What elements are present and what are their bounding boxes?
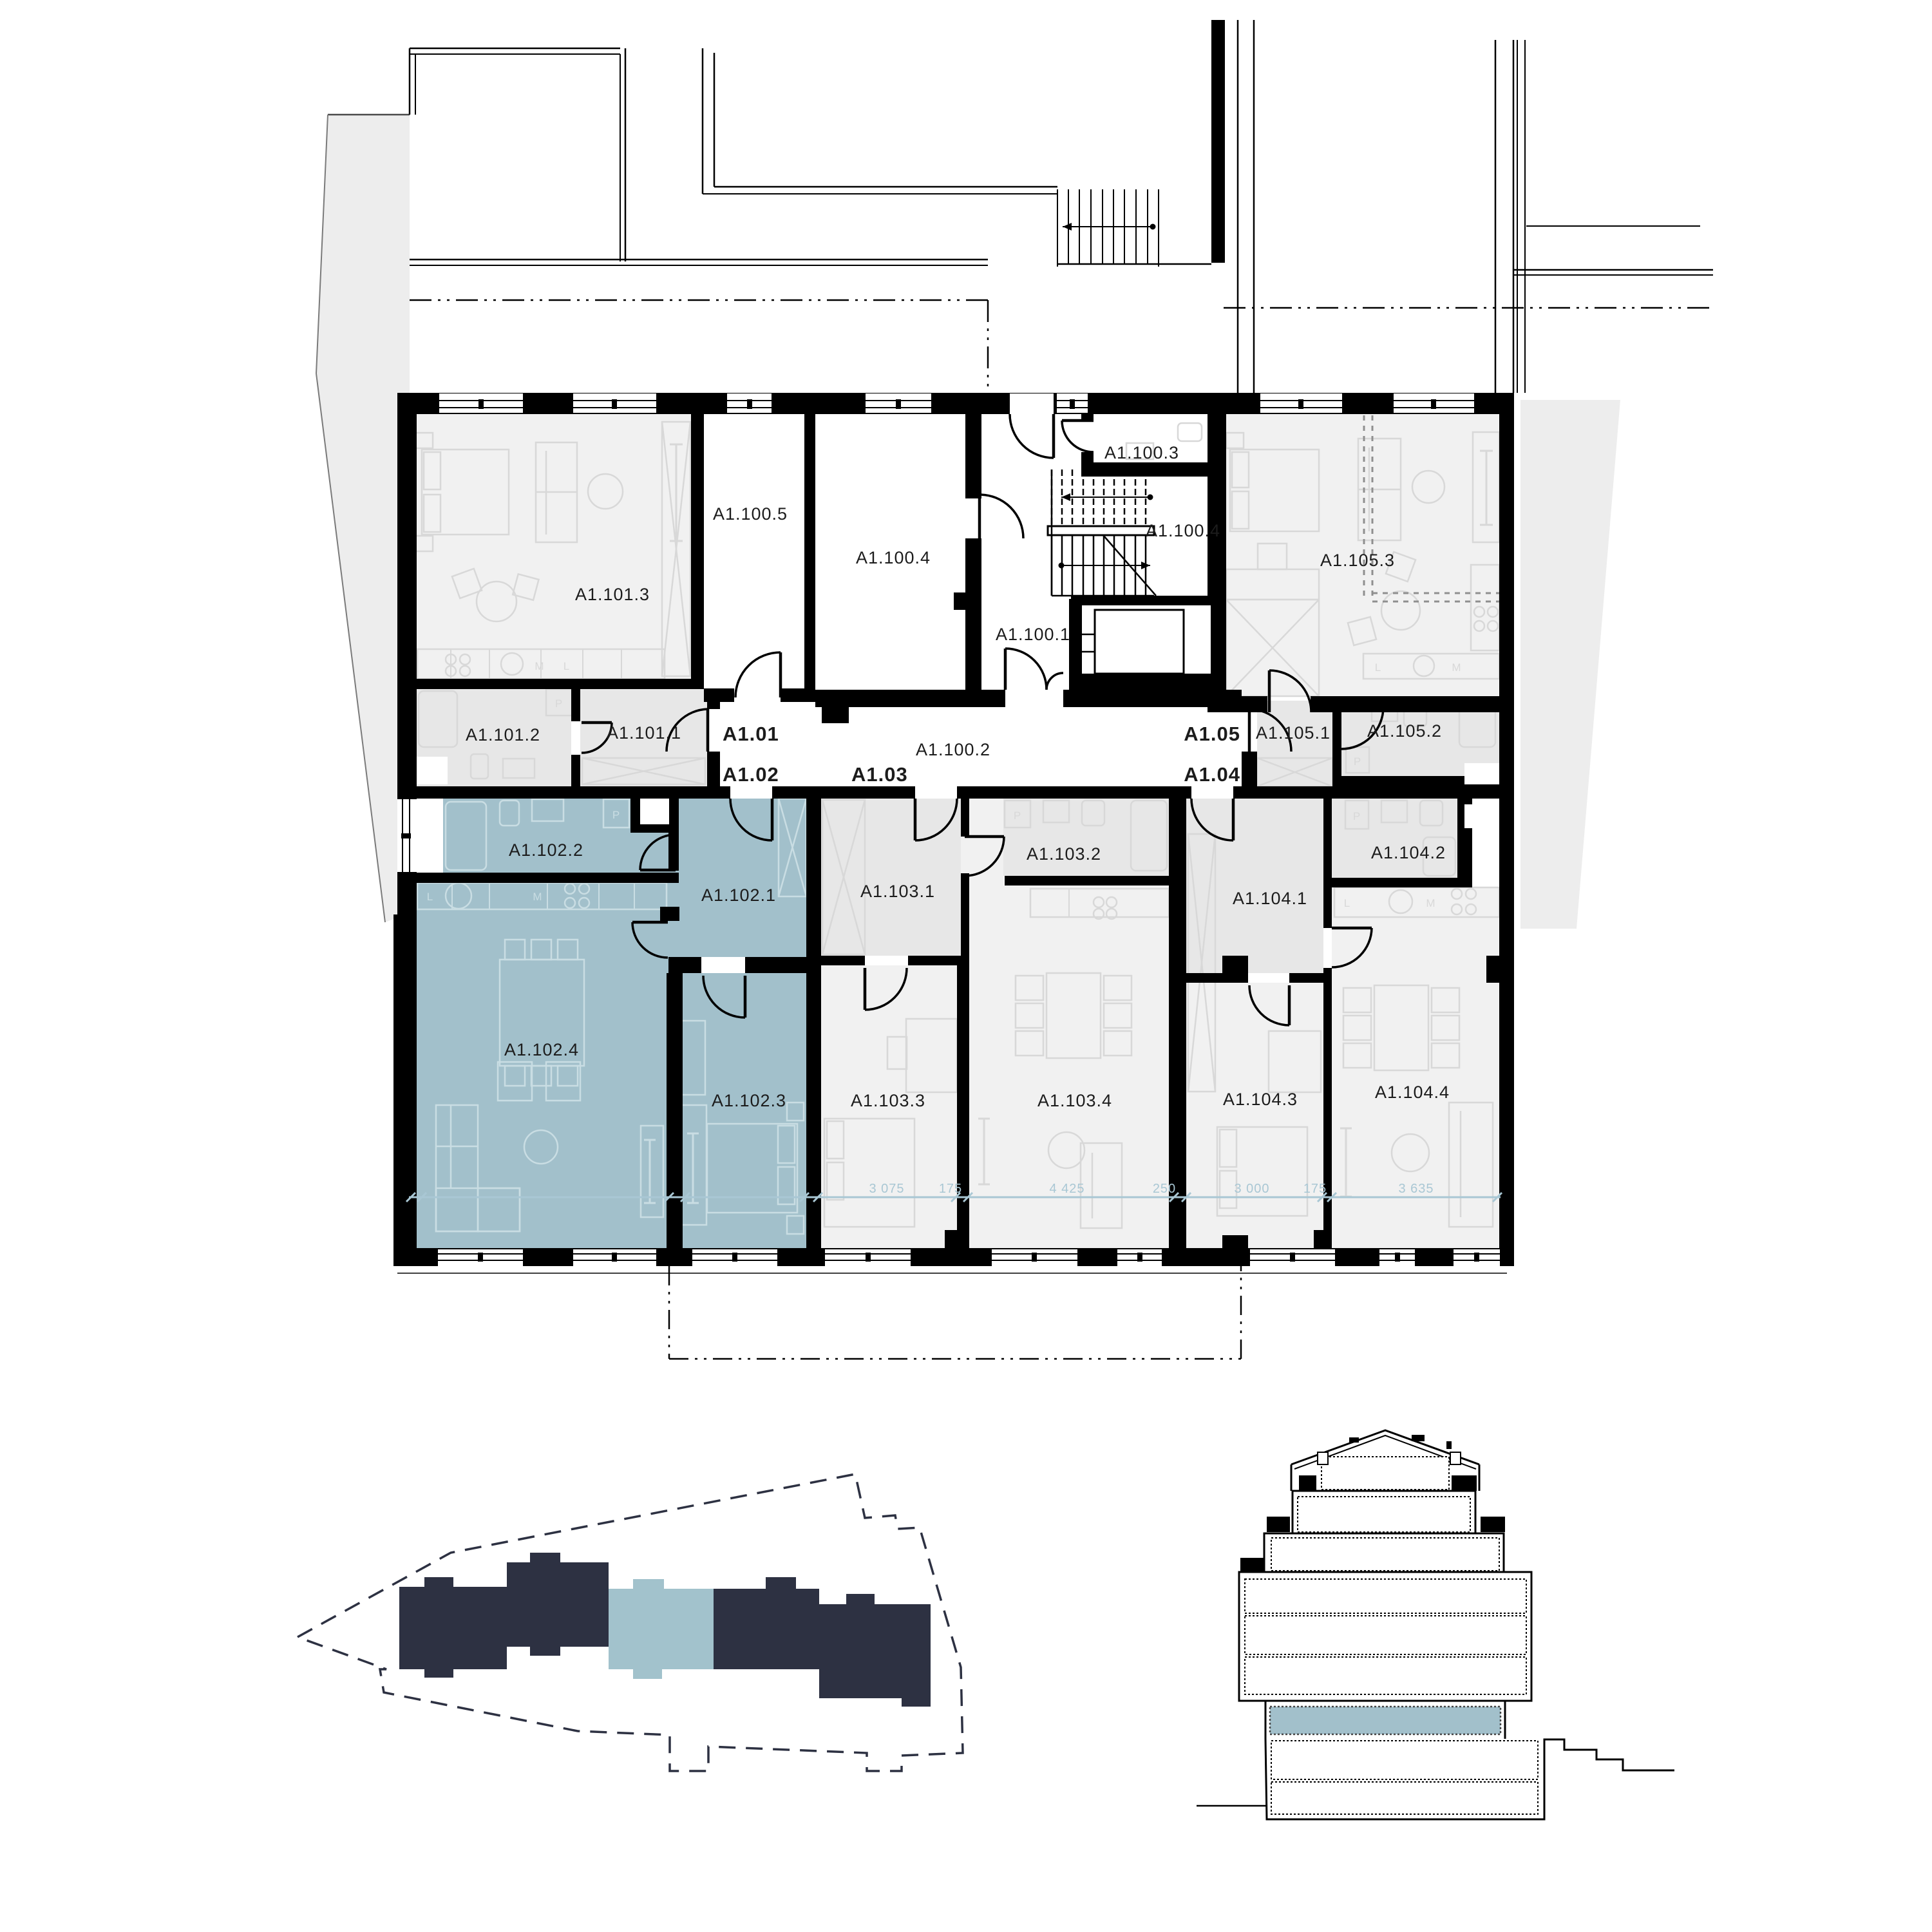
svg-text:A1.05: A1.05 (1184, 723, 1240, 745)
svg-text:P: P (1354, 755, 1361, 768)
svg-text:M: M (1426, 897, 1435, 909)
svg-text:A1.105.2: A1.105.2 (1367, 721, 1442, 741)
svg-text:A1.100.1: A1.100.1 (996, 625, 1070, 644)
svg-text:A1.104.1: A1.104.1 (1233, 889, 1307, 908)
svg-text:A1.103.2: A1.103.2 (1027, 844, 1101, 864)
svg-text:A1.102.2: A1.102.2 (509, 840, 583, 860)
svg-text:A1.03: A1.03 (851, 763, 908, 786)
svg-text:A1.102.4: A1.102.4 (504, 1040, 579, 1059)
svg-text:3 635: 3 635 (1398, 1182, 1434, 1196)
svg-text:A1.100.4: A1.100.4 (856, 548, 931, 567)
svg-text:P: P (612, 809, 620, 821)
svg-text:A1.105.1: A1.105.1 (1256, 723, 1331, 743)
svg-text:M: M (1452, 661, 1461, 674)
svg-text:175: 175 (1303, 1182, 1327, 1196)
svg-text:A1.02: A1.02 (723, 763, 779, 786)
svg-text:4 425: 4 425 (1049, 1182, 1084, 1196)
svg-text:M: M (533, 891, 542, 903)
svg-text:P: P (1014, 810, 1021, 822)
svg-text:A1.103.4: A1.103.4 (1037, 1091, 1112, 1110)
svg-text:175: 175 (939, 1182, 962, 1196)
svg-text:A1.100.5: A1.100.5 (713, 504, 788, 524)
svg-text:L: L (1344, 897, 1350, 909)
svg-text:A1.103.1: A1.103.1 (860, 882, 935, 901)
svg-text:A1.105.3: A1.105.3 (1320, 551, 1395, 570)
svg-text:A1.01: A1.01 (723, 723, 779, 745)
svg-text:A1.100.2: A1.100.2 (916, 740, 990, 759)
svg-text:L: L (1375, 661, 1381, 674)
svg-text:A1.101.1: A1.101.1 (607, 723, 681, 743)
svg-text:A1.104.3: A1.104.3 (1223, 1090, 1298, 1109)
svg-text:A1.103.3: A1.103.3 (851, 1091, 925, 1110)
svg-text:3 000: 3 000 (1234, 1182, 1269, 1196)
svg-text:A1.101.3: A1.101.3 (575, 585, 650, 604)
svg-text:A1.102.1: A1.102.1 (701, 885, 776, 905)
svg-text:L: L (563, 660, 570, 672)
svg-text:A1.104.2: A1.104.2 (1371, 843, 1446, 862)
svg-text:P: P (555, 697, 563, 710)
svg-text:A1.100.4: A1.100.4 (1146, 521, 1220, 540)
svg-text:M: M (535, 660, 544, 672)
svg-text:250: 250 (1153, 1182, 1176, 1196)
svg-text:A1.104.4: A1.104.4 (1375, 1083, 1450, 1102)
svg-text:A1.100.3: A1.100.3 (1104, 443, 1179, 462)
svg-text:A1.102.3: A1.102.3 (712, 1091, 786, 1110)
svg-text:A1.101.2: A1.101.2 (466, 725, 540, 744)
svg-text:A1.04: A1.04 (1184, 763, 1240, 786)
svg-text:P: P (1353, 810, 1361, 822)
svg-text:3 075: 3 075 (869, 1182, 904, 1196)
svg-text:L: L (427, 891, 433, 903)
